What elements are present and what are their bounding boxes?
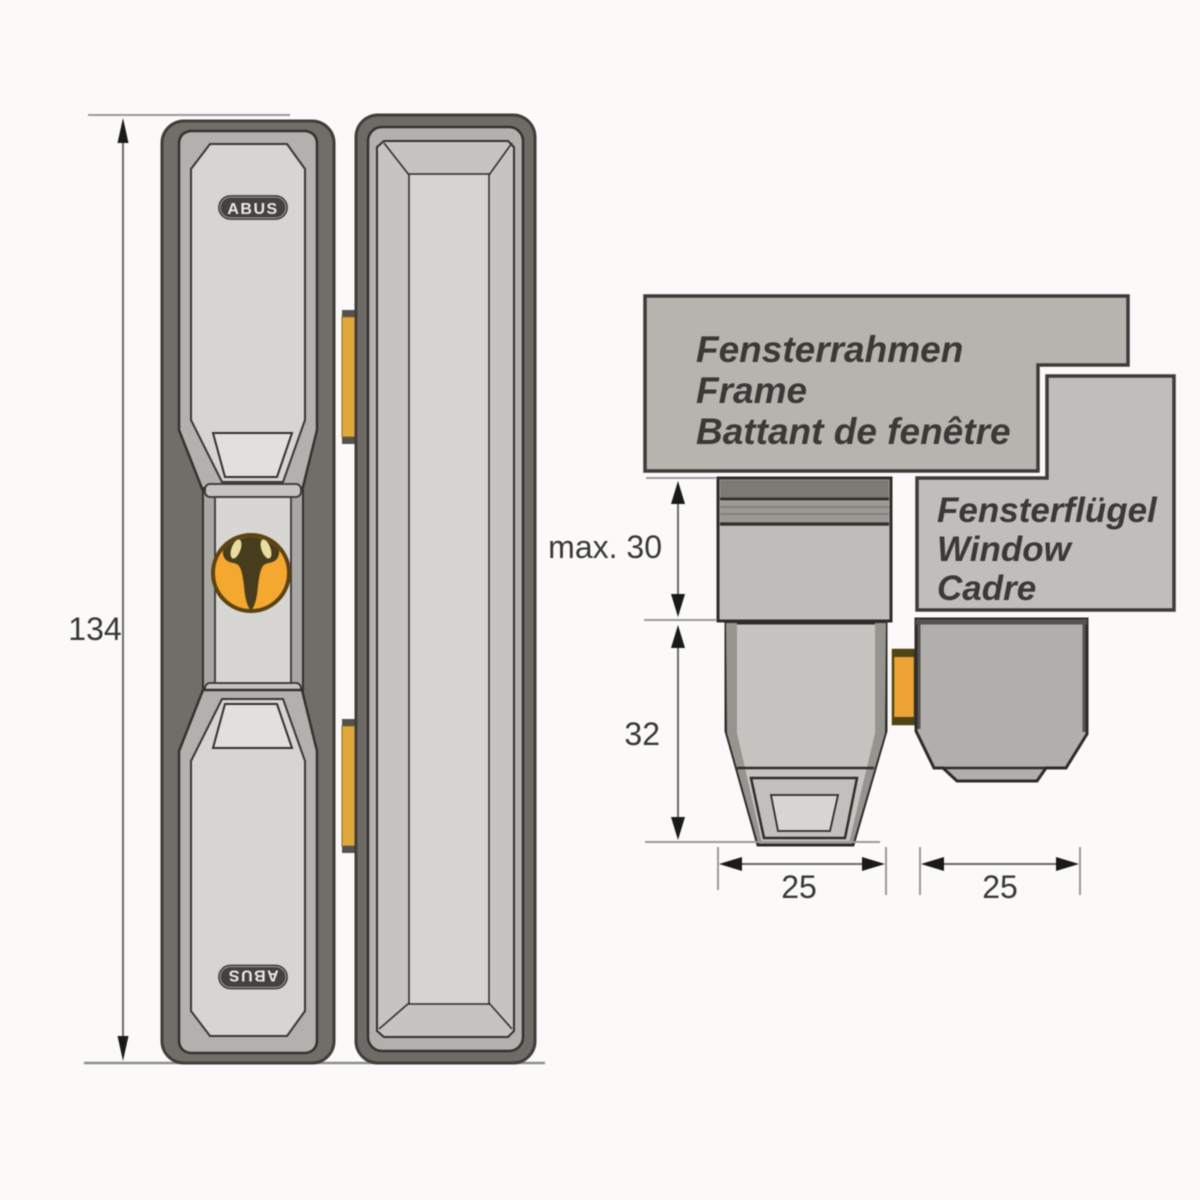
svg-text:ABUS: ABUS <box>227 967 278 984</box>
svg-text:Fensterrahmen: Fensterrahmen <box>696 329 963 370</box>
svg-text:Battant de fenêtre: Battant de fenêtre <box>696 411 1011 452</box>
svg-text:25: 25 <box>982 869 1018 905</box>
svg-text:Frame: Frame <box>696 370 807 411</box>
svg-text:max. 30: max. 30 <box>548 529 662 565</box>
svg-text:25: 25 <box>781 869 817 905</box>
svg-text:Cadre: Cadre <box>937 569 1036 608</box>
svg-text:Fensterflügel: Fensterflügel <box>937 491 1158 530</box>
svg-text:Window: Window <box>937 530 1074 569</box>
svg-text:ABUS: ABUS <box>227 201 278 218</box>
svg-text:134: 134 <box>68 611 121 647</box>
svg-text:32: 32 <box>624 716 660 752</box>
